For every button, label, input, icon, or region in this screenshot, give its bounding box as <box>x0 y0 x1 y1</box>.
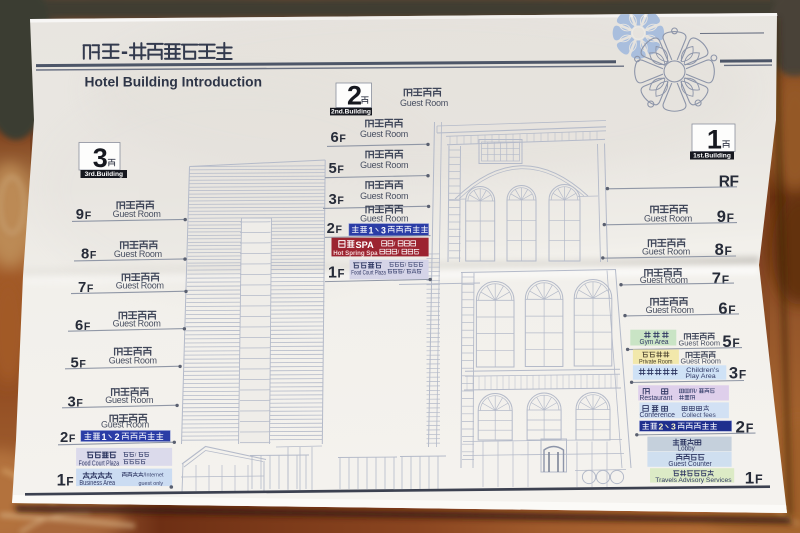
svg-text:Guest Room: Guest Room <box>679 338 721 347</box>
svg-text:6: 6 <box>75 318 83 334</box>
svg-text:7: 7 <box>712 270 721 288</box>
svg-text:F: F <box>66 475 73 489</box>
svg-text:Guest Room: Guest Room <box>114 249 162 259</box>
svg-text:6: 6 <box>331 130 339 146</box>
svg-text:F: F <box>338 269 345 281</box>
svg-text:guest only: guest only <box>139 481 164 487</box>
svg-text:F: F <box>739 368 746 382</box>
svg-text:Guest Room: Guest Room <box>681 357 721 366</box>
svg-text:F: F <box>730 174 739 191</box>
svg-text:Travels Advisory Services: Travels Advisory Services <box>655 477 732 484</box>
svg-text:F: F <box>728 303 735 317</box>
svg-text:Guest Room: Guest Room <box>360 214 408 224</box>
svg-text:2: 2 <box>347 80 362 110</box>
svg-text:F: F <box>722 273 729 287</box>
svg-text:/: / <box>398 249 400 256</box>
svg-text:Lobby: Lobby <box>678 445 696 452</box>
svg-text:3: 3 <box>671 422 676 432</box>
svg-text:1: 1 <box>745 469 754 488</box>
svg-text:2: 2 <box>115 432 120 442</box>
svg-text:F: F <box>85 210 92 222</box>
svg-text:-: - <box>121 41 128 64</box>
svg-text:F: F <box>69 433 76 445</box>
svg-text:2: 2 <box>659 422 664 432</box>
svg-text:2nd.Building: 2nd.Building <box>331 109 371 116</box>
svg-text:Restaurant: Restaurant <box>640 395 673 402</box>
svg-text:1: 1 <box>707 124 722 154</box>
svg-text:/: / <box>394 241 396 248</box>
svg-text:/Internet: /Internet <box>144 473 165 479</box>
svg-text:Gym Area: Gym Area <box>640 339 669 346</box>
svg-text:Guest Room: Guest Room <box>109 356 157 366</box>
svg-text:Guest Room: Guest Room <box>116 280 164 290</box>
svg-text:SPA: SPA <box>356 240 375 250</box>
svg-text:2: 2 <box>60 430 68 446</box>
svg-text:Guest Room: Guest Room <box>113 319 161 329</box>
svg-text:Guest Counter: Guest Counter <box>668 461 712 468</box>
svg-text:Business Area: Business Area <box>79 478 115 487</box>
svg-text:1: 1 <box>57 472 66 490</box>
svg-text:Conference: Conference <box>640 412 676 419</box>
svg-text:Hotel Building Introduction: Hotel Building Introduction <box>85 74 263 90</box>
svg-text:3rd.Building: 3rd.Building <box>85 171 123 178</box>
svg-text:F: F <box>337 195 344 207</box>
svg-text:Guest Room: Guest Room <box>646 305 694 315</box>
svg-text:Guest Room: Guest Room <box>360 160 408 170</box>
svg-text:Guest Room: Guest Room <box>642 247 690 257</box>
svg-text:F: F <box>336 224 343 236</box>
svg-text:F: F <box>337 164 344 176</box>
svg-text:5: 5 <box>329 161 337 177</box>
svg-text:Guest Room: Guest Room <box>113 209 161 219</box>
svg-text:Private Room: Private Room <box>639 358 673 365</box>
svg-text:Collect fees: Collect fees <box>682 412 717 419</box>
svg-text:1: 1 <box>369 225 374 235</box>
svg-text:1: 1 <box>328 265 337 282</box>
svg-text:3: 3 <box>381 225 386 235</box>
svg-text:Guest Room: Guest Room <box>644 214 692 224</box>
svg-text:Guest Room: Guest Room <box>101 420 149 430</box>
svg-text:3: 3 <box>329 192 337 208</box>
svg-text:Food Court Plaza: Food Court Plaza <box>351 269 386 276</box>
svg-text:F: F <box>755 473 763 487</box>
svg-text:Guest Room: Guest Room <box>400 98 448 108</box>
svg-text:9: 9 <box>76 207 84 223</box>
svg-text:F: F <box>90 250 97 262</box>
svg-text:3: 3 <box>93 143 108 173</box>
svg-text:2: 2 <box>327 221 335 237</box>
svg-text:Guest Room: Guest Room <box>360 129 408 139</box>
svg-text:Play Area: Play Area <box>685 373 716 380</box>
svg-text:3: 3 <box>729 365 738 383</box>
svg-text:Hot Spring Spa: Hot Spring Spa <box>333 250 378 257</box>
svg-text:1st.Building: 1st.Building <box>693 153 731 160</box>
svg-text:1: 1 <box>102 432 107 442</box>
svg-text:Guest Room: Guest Room <box>105 395 153 405</box>
svg-text:Guest Room: Guest Room <box>360 191 408 201</box>
svg-text:6: 6 <box>718 300 727 318</box>
svg-text:R: R <box>719 174 730 191</box>
svg-text:Food Court Plaza: Food Court Plaza <box>79 458 120 467</box>
svg-text:F: F <box>339 133 346 145</box>
